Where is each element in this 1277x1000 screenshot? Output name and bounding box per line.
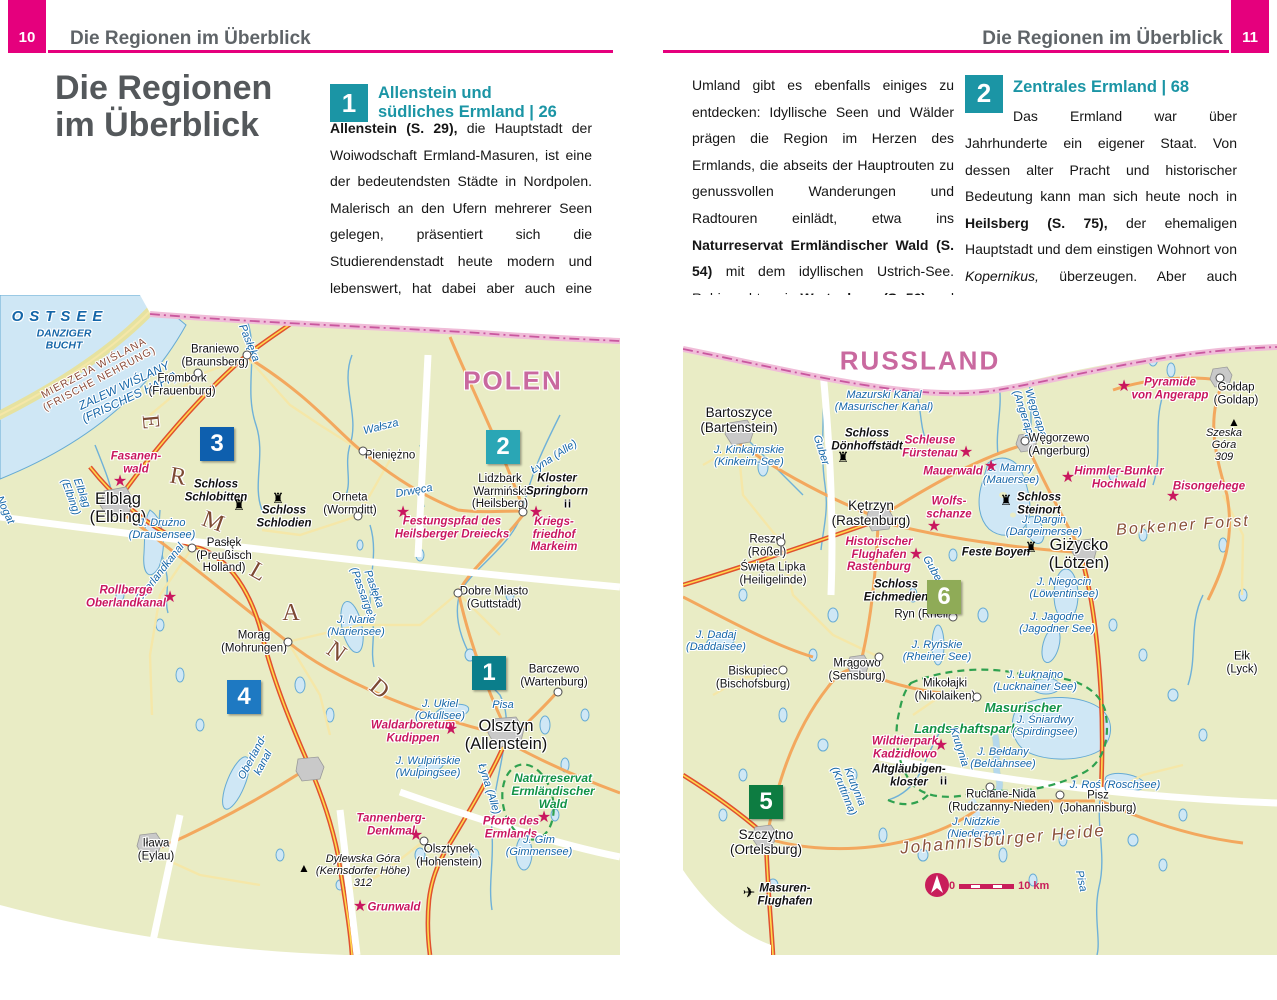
map-label: Pasłęk(PreußischHolland) bbox=[196, 537, 252, 575]
map-label: J. Kinkajmskie(Kinkeim-See) bbox=[714, 444, 784, 468]
map-label: RUSSLAND bbox=[840, 347, 1000, 376]
map-label: Grunwald bbox=[367, 902, 420, 915]
map-label: Mauerwald bbox=[923, 466, 982, 479]
map-label: Barczewo(Wartenburg) bbox=[520, 663, 587, 688]
map-label: Pisz(Johannisburg) bbox=[1060, 789, 1137, 814]
dot-icon bbox=[359, 447, 368, 456]
map-label: Wolfs-schanze bbox=[926, 495, 971, 520]
castle-icon: ♜ bbox=[272, 491, 285, 505]
map-label: Mazurski Kanal(Masurischer Kanal) bbox=[835, 389, 933, 413]
star-icon: ★ bbox=[1166, 489, 1180, 505]
map-label: Dobre Miasto(Guttstadt) bbox=[460, 585, 528, 610]
map-label: J. Gim(Gimmensee) bbox=[506, 834, 573, 858]
map-label: Święta Lipka(Heiligelinde) bbox=[739, 561, 806, 586]
map-label: HistorischerFlughafenRastenburg bbox=[845, 536, 912, 574]
dot-icon bbox=[973, 693, 982, 702]
map-masuren-east: 0 10 km RUSSLANDMazurski Kanal(Masurisch… bbox=[683, 295, 1277, 955]
map-label: A bbox=[282, 600, 299, 626]
dot-icon bbox=[875, 653, 884, 662]
page-number-right: 11 bbox=[1231, 0, 1269, 53]
castle-icon: ♜ bbox=[1025, 540, 1038, 554]
map-label: J. Ukiel(Okullsee) bbox=[415, 698, 465, 722]
map-number-box: 3 bbox=[200, 427, 234, 461]
map-label: Pieniężno bbox=[365, 450, 416, 463]
head-rule-right bbox=[663, 50, 1229, 53]
map-label: J. Wulpińskie(Wulpingsee) bbox=[396, 755, 461, 779]
star-icon: ★ bbox=[537, 810, 551, 826]
star-icon: ★ bbox=[113, 474, 127, 490]
running-head-right: Die Regionen im Überblick bbox=[963, 28, 1223, 50]
map-label: Węgorzewo(Angerburg) bbox=[1028, 432, 1089, 457]
map-label: SchleuseFürstenau bbox=[902, 434, 958, 459]
peak-icon: ▲ bbox=[1228, 416, 1240, 428]
map-label: WaldarboretumKudippen bbox=[371, 719, 455, 744]
scale-end: 10 km bbox=[1018, 880, 1049, 892]
map-number-box: 5 bbox=[749, 785, 783, 819]
map-label: LidzbarkWarmiński(Heilsberg) bbox=[472, 473, 528, 511]
map-number-box: 6 bbox=[927, 580, 961, 614]
map-label: DANZIGERBUCHT bbox=[37, 328, 92, 351]
map-label: SchlossEichmedien bbox=[864, 578, 929, 603]
map-label: Kriegs-friedhofMarkeim bbox=[531, 516, 578, 554]
star-icon: ★ bbox=[1061, 470, 1075, 486]
map-label: J. Śniardwy(Spirdingsee) bbox=[1012, 714, 1077, 738]
map-number-box: 1 bbox=[472, 656, 506, 690]
map-number-box: 2 bbox=[486, 430, 520, 464]
compass-rose-icon bbox=[924, 872, 950, 898]
plane-icon: ✈ bbox=[743, 886, 756, 901]
page-title: Die Regionen im Überblick bbox=[55, 70, 272, 145]
page-number-left: 10 bbox=[8, 0, 46, 53]
star-icon: ★ bbox=[1117, 379, 1131, 395]
map-label: NaturreservatErmländischerWald bbox=[511, 772, 594, 812]
map-label: J. Jagodne(Jagodner See) bbox=[1019, 611, 1095, 635]
map-label: Braniewo(Braunsberg) bbox=[181, 343, 248, 368]
dot-icon bbox=[243, 351, 252, 360]
running-head-left: Die Regionen im Überblick bbox=[70, 28, 311, 50]
map-label: KlosterSpringborn bbox=[526, 472, 588, 497]
map-label: Orneta(Wormditt) bbox=[323, 491, 376, 516]
dot-icon bbox=[354, 512, 363, 521]
map-label: J. Roś (Roschsee) bbox=[1070, 779, 1160, 791]
map-label: Feste Boyen bbox=[962, 547, 1030, 560]
star-icon: ★ bbox=[353, 899, 367, 915]
map-label: Altgläubigen-kloster bbox=[872, 763, 945, 788]
map-label: J. Ryńskie(Rheiner See) bbox=[903, 639, 971, 663]
map-label: Ełk(Lyck) bbox=[1227, 650, 1258, 675]
map-label: Dylewska Góra(Kernsdorfer Höhe)312 bbox=[316, 853, 410, 889]
star-icon: ★ bbox=[927, 519, 941, 535]
map-label: Morąg(Mohrungen) bbox=[221, 629, 287, 654]
map-label: Mikołajki(Nikolaiken) bbox=[915, 677, 976, 702]
head-rule-left bbox=[48, 50, 613, 53]
map-label: Gołdap(Goldap) bbox=[1214, 381, 1259, 406]
map-label: Giżycko(Lötzen) bbox=[1049, 536, 1110, 572]
map-label: Fasanen-wald bbox=[111, 450, 162, 475]
map-label: Pisa bbox=[492, 699, 513, 711]
star-icon: ★ bbox=[984, 459, 998, 475]
star-icon: ★ bbox=[444, 722, 458, 738]
map-label: RollbergeOberlandkanal bbox=[86, 584, 166, 609]
dot-icon bbox=[454, 589, 463, 598]
map-label: SchlossSchlodien bbox=[257, 504, 312, 529]
star-icon: ★ bbox=[529, 505, 543, 521]
map-label: Pyramidevon Angerapp bbox=[1132, 376, 1209, 401]
map-label: E bbox=[136, 414, 164, 431]
map-label: SchlossSteinort bbox=[1017, 491, 1061, 516]
church-icon: ii bbox=[940, 777, 948, 788]
map-label: Bisongehege bbox=[1173, 481, 1245, 494]
dot-icon bbox=[420, 837, 429, 846]
section-2-number: 2 bbox=[965, 75, 1003, 113]
map-label: Iława(Eylau) bbox=[138, 837, 174, 862]
star-icon: ★ bbox=[959, 445, 973, 461]
map-label: Himmler-BunkerHochwald bbox=[1074, 465, 1163, 490]
map-label: POLEN bbox=[463, 367, 563, 396]
map-label: OSTSEE bbox=[12, 309, 109, 326]
dot-icon bbox=[986, 783, 995, 792]
map-label: WildtierparkKadzidłowo bbox=[872, 735, 938, 760]
map-label: SzeskaGóra309 bbox=[1206, 427, 1242, 463]
dot-icon bbox=[194, 369, 203, 378]
peak-icon: ▲ bbox=[298, 862, 310, 874]
map-label: J. Bełdany(Beldahnsee) bbox=[970, 746, 1035, 770]
dot-icon bbox=[284, 638, 293, 647]
book-spread: 10 Die Regionen im Überblick 11 Die Regi… bbox=[0, 0, 1277, 1000]
map-label: Frombork(Frauenburg) bbox=[148, 372, 215, 397]
dot-icon bbox=[1056, 791, 1065, 800]
map-label: J. Dargin(Dargeimersee) bbox=[1006, 514, 1082, 538]
dot-icon bbox=[519, 508, 528, 517]
dot-icon bbox=[1021, 437, 1030, 446]
star-icon: ★ bbox=[396, 505, 410, 521]
map-scale-bar: 0 10 km bbox=[949, 880, 1049, 892]
map-ermland-west: OSTSEEDANZIGERBUCHTMIERZEJA WIŚLANA(FRIS… bbox=[0, 295, 620, 955]
scale-segments bbox=[959, 884, 1014, 889]
star-icon: ★ bbox=[909, 547, 923, 563]
map-label: J. Dadaj(Daddaisee) bbox=[686, 629, 746, 653]
map-label: J. Niegocin(Löwentinsee) bbox=[1029, 576, 1098, 600]
map-label: Olsztyn(Allenstein) bbox=[465, 717, 548, 753]
map-label: Bartoszyce(Bartenstein) bbox=[700, 406, 777, 436]
map-label: Olsztynek(Hohenstein) bbox=[416, 843, 482, 868]
dot-icon bbox=[777, 538, 786, 547]
castle-icon: ♜ bbox=[837, 450, 850, 464]
map-label: J. Łuknajno(Lucknainer See) bbox=[993, 669, 1077, 693]
star-icon: ★ bbox=[163, 590, 177, 606]
dot-icon bbox=[1216, 374, 1225, 383]
map-label: Masuren-Flughafen bbox=[758, 882, 813, 907]
map-label: J. Drużno(Drausensee) bbox=[129, 517, 196, 541]
map-label: Szczytno(Ortelsburg) bbox=[730, 828, 802, 858]
dot-icon bbox=[554, 688, 563, 697]
castle-icon: ♜ bbox=[233, 498, 246, 512]
star-icon: ★ bbox=[934, 738, 948, 754]
map-label: Festungspfad desHeilsberger Dreiecks bbox=[395, 515, 509, 540]
map-label: Landschaftspark bbox=[914, 722, 1018, 736]
section-2-heading: Zentrales Ermland | 68 bbox=[1013, 78, 1189, 96]
map-label: Kętrzyn(Rastenburg) bbox=[832, 499, 911, 529]
map-label: J. Narie(Nariensee) bbox=[327, 614, 384, 638]
church-icon: ii bbox=[564, 500, 572, 511]
map-label: Ruciane-Nida(Rudczanny-Nieden) bbox=[948, 788, 1053, 813]
castle-icon: ♜ bbox=[1000, 493, 1013, 507]
dot-icon bbox=[779, 666, 788, 675]
dot-icon bbox=[188, 544, 197, 553]
scale-start: 0 bbox=[949, 880, 955, 892]
map-number-box: 4 bbox=[227, 680, 261, 714]
